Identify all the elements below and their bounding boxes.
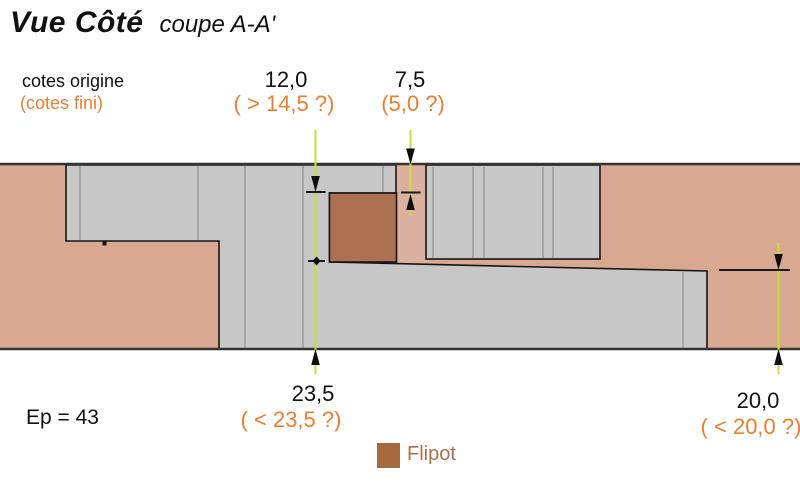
flipot-patch [330,193,397,262]
arrow-up-right [774,349,783,365]
flipot-legend-swatch [377,443,400,468]
cross-section-drawing [0,0,800,494]
section-view-page: Vue Côté coupe A-A' cotes origine (cotes… [0,0,800,494]
flipot-swatch-rect [377,443,400,468]
arrow-down-groove [406,149,415,165]
upper-right-board [426,165,600,259]
arrow-up-left [311,349,320,365]
shoulder-notch [103,241,107,246]
flipot-legend-label: Flipot [407,443,456,466]
